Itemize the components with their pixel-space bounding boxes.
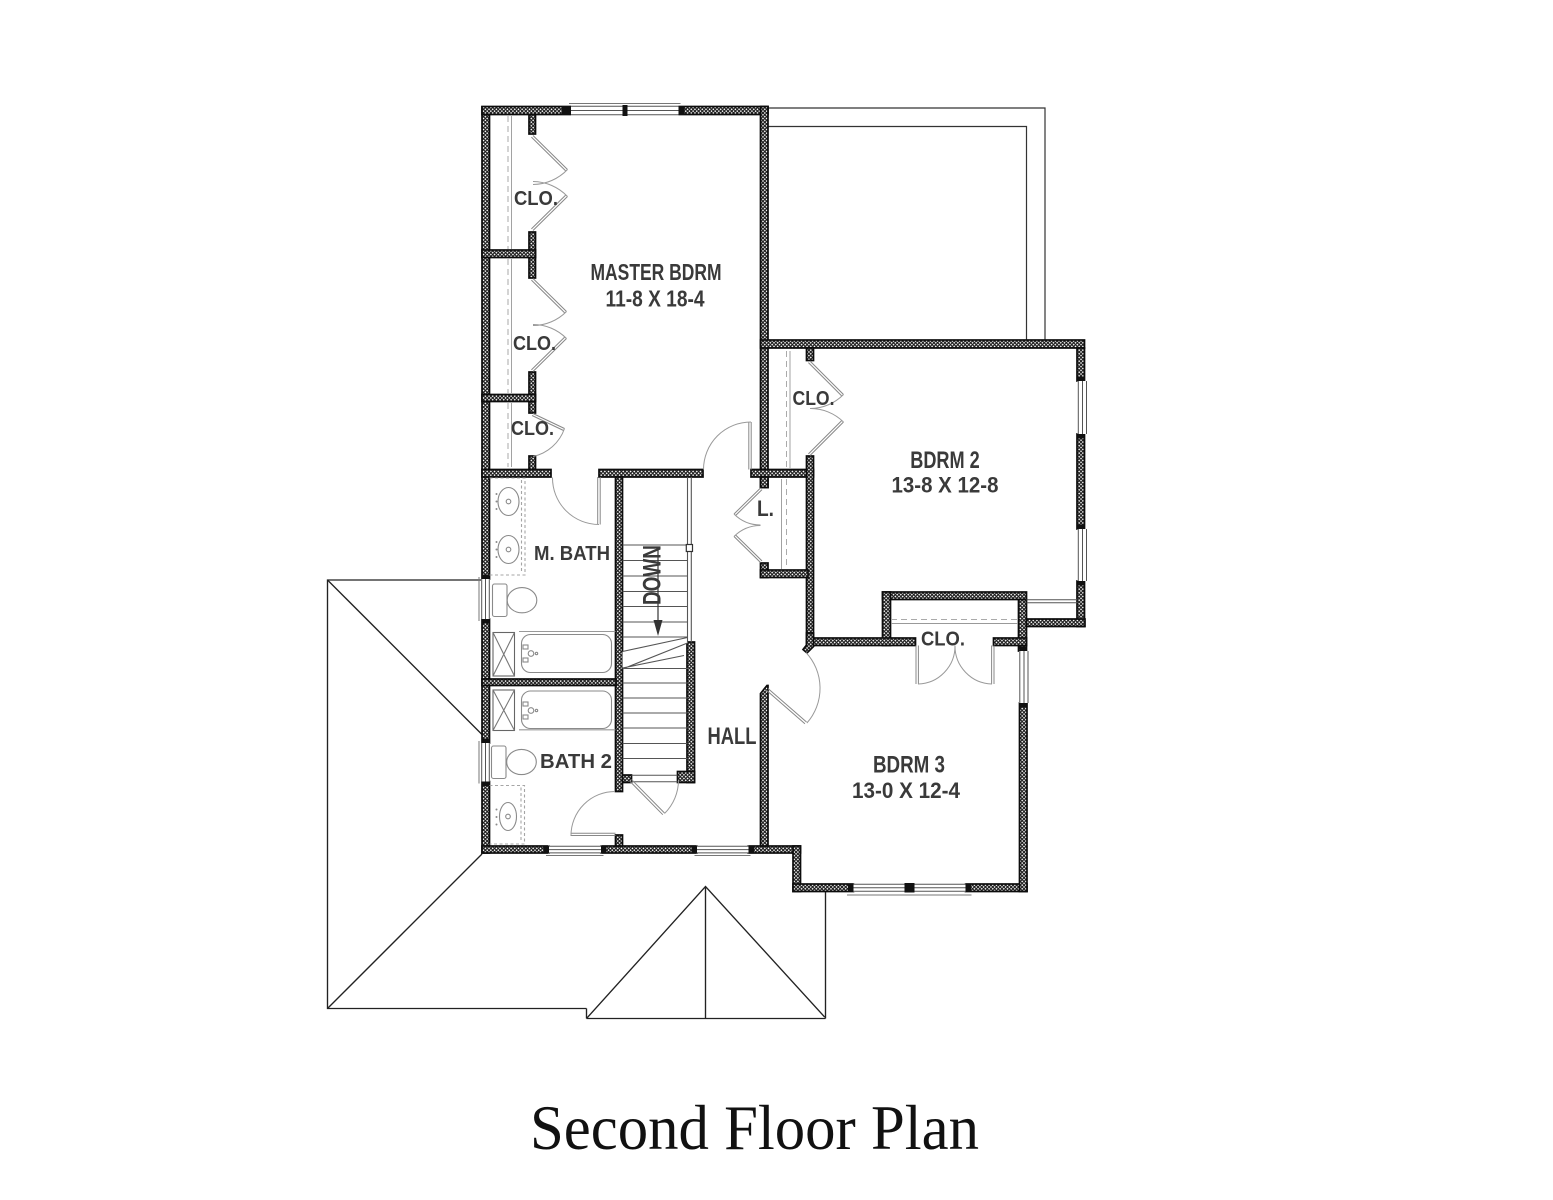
svg-text:MASTER BDRM: MASTER BDRM <box>591 259 722 285</box>
svg-text:HALL: HALL <box>708 723 757 750</box>
svg-text:13-0 X 12-4: 13-0 X 12-4 <box>852 778 961 803</box>
svg-text:CLO.: CLO. <box>513 333 556 355</box>
svg-text:11-8 X 18-4: 11-8 X 18-4 <box>606 286 705 312</box>
svg-text:CLO.: CLO. <box>514 188 558 210</box>
svg-text:CLO.: CLO. <box>921 629 965 651</box>
svg-text:CLO.: CLO. <box>511 418 554 440</box>
svg-text:BDRM 3: BDRM 3 <box>873 752 945 779</box>
svg-text:BATH 2: BATH 2 <box>540 751 612 773</box>
svg-text:L.: L. <box>757 496 774 521</box>
svg-text:13-8 X 12-8: 13-8 X 12-8 <box>892 473 999 498</box>
svg-text:BDRM 2: BDRM 2 <box>910 447 980 474</box>
svg-text:M. BATH: M. BATH <box>534 543 610 565</box>
svg-text:CLO.: CLO. <box>793 388 835 410</box>
svg-text:DOWN: DOWN <box>639 545 667 605</box>
svg-text:Second Floor Plan: Second Floor Plan <box>530 1093 979 1163</box>
